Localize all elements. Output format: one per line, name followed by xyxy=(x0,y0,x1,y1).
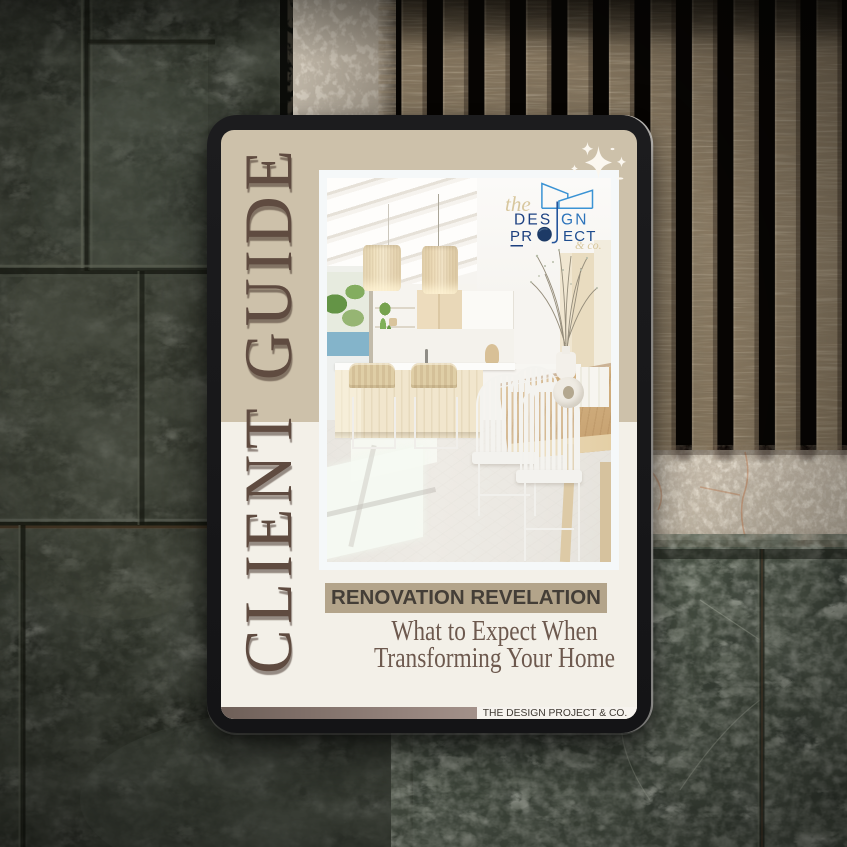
svg-text:DES: DES xyxy=(514,212,552,229)
svg-text:GN: GN xyxy=(561,212,589,229)
svg-text:PR: PR xyxy=(510,228,533,245)
svg-text:& co.: & co. xyxy=(575,238,602,252)
